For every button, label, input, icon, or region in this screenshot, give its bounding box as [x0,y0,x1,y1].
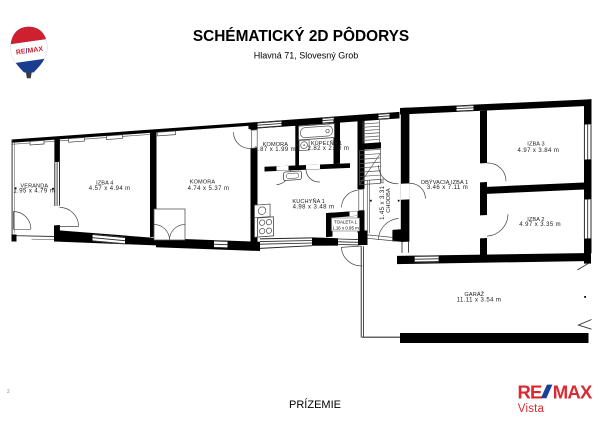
svg-text:11.11 x 3.54 m: 11.11 x 3.54 m [457,297,502,303]
svg-text:2.82 x 2.00 m: 2.82 x 2.00 m [307,146,349,152]
svg-text:4.97 x 3.35 m: 4.97 x 3.35 m [519,222,561,228]
svg-text:3.46 x 7.11 m: 3.46 x 7.11 m [427,185,468,191]
svg-text:4.74 x 5.37 m: 4.74 x 5.37 m [188,186,230,192]
svg-text:CHODBA: CHODBA [386,188,392,213]
svg-text:1.45 x 3.31 m: 1.45 x 3.31 m [380,178,386,220]
svg-text:MAX: MAX [553,381,593,402]
svg-text:1.95 x 4.79 m: 1.95 x 4.79 m [13,189,55,195]
svg-text:KOMORA: KOMORA [190,180,216,186]
svg-text:Vista: Vista [518,403,545,415]
svg-text:2: 2 [7,389,10,395]
svg-text:RE: RE [518,381,543,402]
svg-text:TOALETA 1: TOALETA 1 [334,220,358,225]
svg-text:0.87 x 1.99 m: 0.87 x 1.99 m [254,147,296,153]
svg-text:4.57 x 4.94 m: 4.57 x 4.94 m [89,186,131,192]
svg-text:4.97 x 3.84 m: 4.97 x 3.84 m [517,148,559,154]
svg-text:SCHÉMATICKÝ 2D PÔDORYS: SCHÉMATICKÝ 2D PÔDORYS [193,27,409,45]
svg-text:PRÍZEMIE: PRÍZEMIE [289,398,341,411]
svg-text:IZBA 3: IZBA 3 [527,142,544,148]
svg-text:4.98 x 3.48 m: 4.98 x 3.48 m [293,204,335,210]
svg-text:Hlavná 71, Slovesný Grob: Hlavná 71, Slovesný Grob [254,51,359,61]
svg-text:1.16 x 0.95 m: 1.16 x 0.95 m [332,226,359,231]
